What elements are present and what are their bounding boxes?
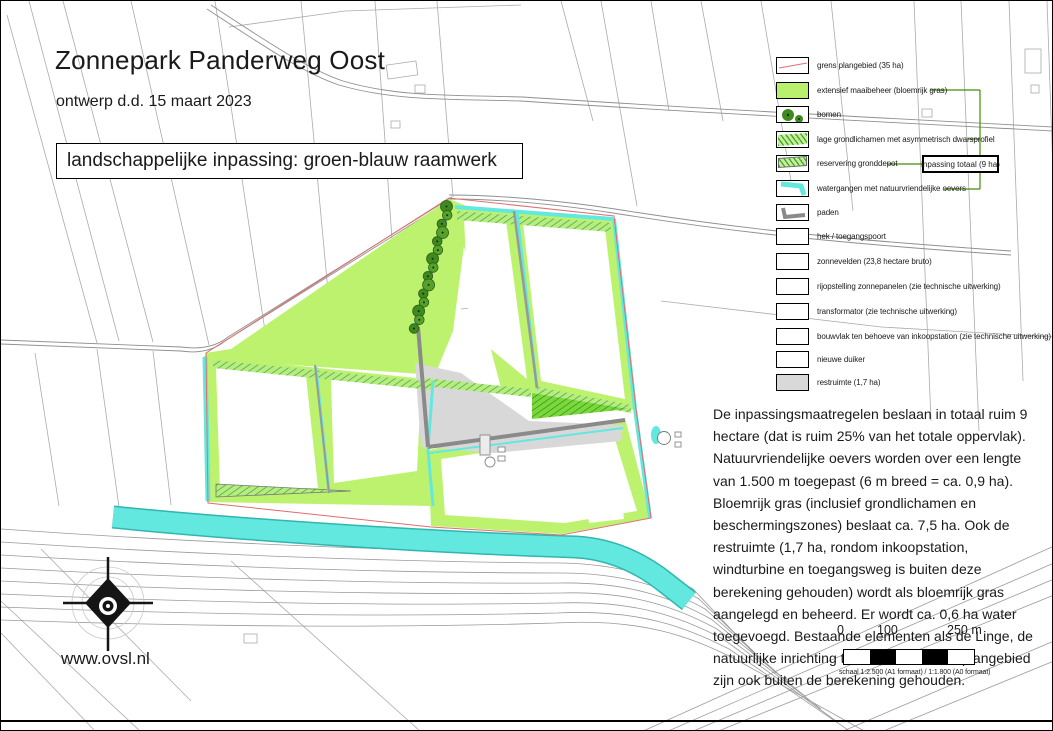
zonnevelden-swatch	[776, 253, 809, 270]
scale-bar	[843, 649, 975, 665]
legend-item-label: rijopstelling zonnepanelen (zie technisc…	[817, 282, 1001, 291]
legend-item-watergangen: watergangen met natuurvriendelijke oever…	[776, 180, 966, 197]
paden-swatch	[776, 204, 809, 221]
banner-label: landschappelijke inpassing: groen-blauw …	[67, 150, 497, 172]
scale-bar-cell	[922, 650, 948, 657]
legend-item-label: bouwvlak ten behoeve van inkoopstation (…	[817, 332, 1051, 341]
design-date: ontwerp d.d. 15 maart 2023	[56, 93, 252, 111]
legend-item-zonnevelden: zonnevelden (23,8 hectare bruto)	[776, 253, 932, 270]
legend-item-extensief-maaibeheer: extensief maaibeheer (bloemrijk gras)	[776, 82, 947, 99]
extensief-maaibeheer-swatch	[776, 82, 809, 99]
scale-tick-0: 0	[837, 623, 844, 637]
legend-item-label: restruimte (1,7 ha)	[817, 378, 880, 387]
banner-box: landschappelijke inpassing: groen-blauw …	[56, 143, 523, 179]
scale-bar-cell	[922, 657, 948, 664]
rijopstelling-zonnepanelen-swatch	[776, 278, 809, 295]
sheet-frame-line	[1, 720, 1052, 722]
legend-item-rijopstelling-zonnepanelen: rijopstelling zonnepanelen (zie technisc…	[776, 278, 1001, 295]
legend-item-label: hek / toegangspoort	[817, 232, 886, 241]
legend-item-label: lage grondlichamen met asymmetrisch dwar…	[817, 135, 995, 144]
bouwvlak-inkoopstation-swatch	[776, 328, 809, 345]
legend-item-lage-grondlichamen: lage grondlichamen met asymmetrisch dwar…	[776, 131, 995, 148]
legend-item-label: bomen	[817, 110, 841, 119]
grens-plangebied-swatch	[776, 57, 809, 74]
inpassing-total-callout: inpassing totaal (9 ha)	[922, 155, 999, 173]
scale-bar-cell	[870, 650, 896, 657]
plan-sheet: Zonnepark Panderweg Oost ontwerp d.d. 15…	[0, 0, 1053, 731]
scale-tick-250: 250 m	[947, 623, 982, 637]
legend-item-reservering-gronddepot: reservering gronddepot	[776, 155, 898, 172]
page-title: Zonnepark Panderweg Oost	[55, 45, 385, 76]
legend-item-bouwvlak-inkoopstation: bouwvlak ten behoeve van inkoopstation (…	[776, 328, 1051, 345]
legend-item-hek-toegangspoort: hek / toegangspoort	[776, 228, 886, 245]
scale-bar-cell	[948, 650, 974, 657]
nieuwe-duiker-swatch	[776, 351, 809, 368]
scale-bar-cell	[870, 657, 896, 664]
scale-bar-cell	[896, 650, 922, 657]
compass-rose	[63, 557, 153, 651]
legend-item-label: transformator (zie technische uitwerking…	[817, 307, 957, 316]
scale-bar-cell	[844, 650, 870, 657]
hek-toegangspoort-swatch	[776, 228, 809, 245]
legend-item-restruimte: restruimte (1,7 ha)	[776, 374, 880, 391]
restruimte-swatch	[776, 374, 809, 391]
legend-item-label: reservering gronddepot	[817, 159, 898, 168]
scale-tick-100: 100	[877, 623, 898, 637]
legend-item-label: nieuwe duiker	[817, 355, 865, 364]
scale-bar-cell	[948, 657, 974, 664]
bomen-swatch	[776, 106, 809, 123]
legend-item-label: zonnevelden (23,8 hectare bruto)	[817, 257, 932, 266]
legend-item-label: paden	[817, 208, 839, 217]
legend-item-nieuwe-duiker: nieuwe duiker	[776, 351, 865, 368]
scale-bar-cell	[896, 657, 922, 664]
legend-item-label: watergangen met natuurvriendelijke oever…	[817, 184, 966, 193]
legend-item-transformator: transformator (zie technische uitwerking…	[776, 303, 957, 320]
scale-bar-cell	[844, 657, 870, 664]
reservering-gronddepot-swatch	[776, 155, 809, 172]
watergangen-swatch	[776, 180, 809, 197]
lage-grondlichamen-swatch	[776, 131, 809, 148]
legend-item-label: grens plangebied (35 ha)	[817, 61, 904, 70]
legend-item-label: extensief maaibeheer (bloemrijk gras)	[817, 86, 947, 95]
scale-caption: schaal 1:2.500 (A1 formaat) / 1:1.800 (A…	[839, 669, 990, 676]
legend-item-paden: paden	[776, 204, 839, 221]
legend-item-grens-plangebied: grens plangebied (35 ha)	[776, 57, 904, 74]
transformator-swatch	[776, 303, 809, 320]
legend-item-bomen: bomen	[776, 106, 841, 123]
website-link[interactable]: www.ovsl.nl	[61, 649, 150, 669]
